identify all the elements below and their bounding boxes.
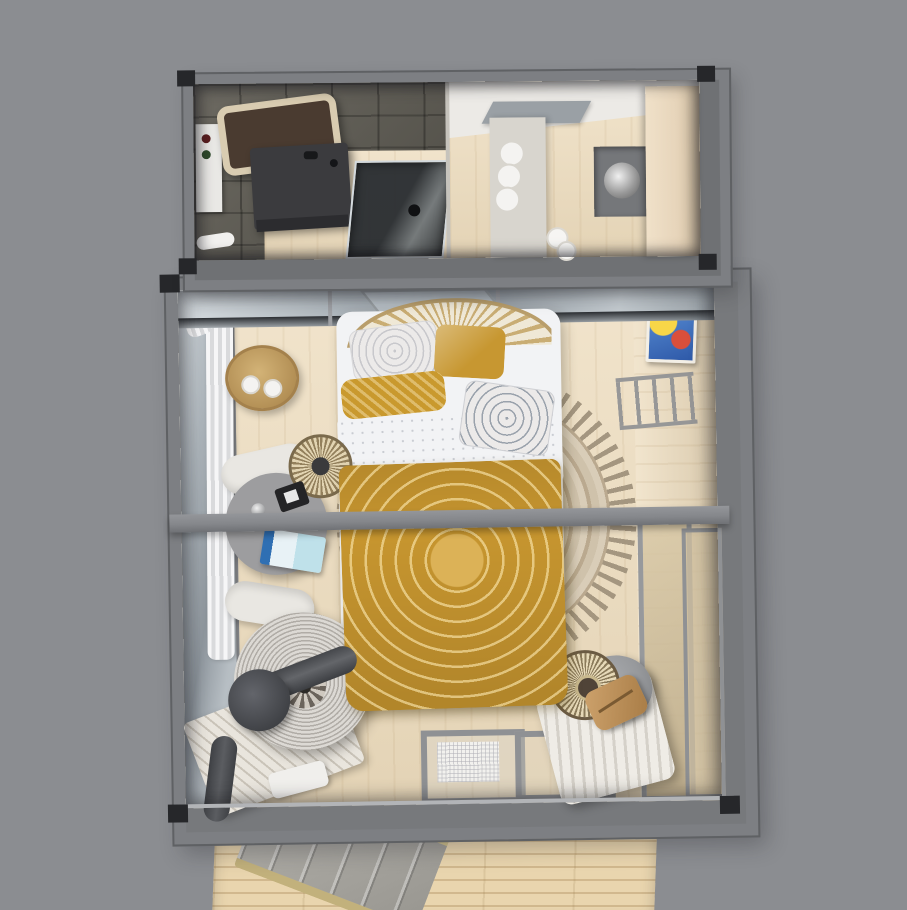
wall-light-center bbox=[311, 457, 329, 475]
duvet-mandala bbox=[338, 459, 568, 712]
washer-drum bbox=[604, 162, 640, 198]
doormat bbox=[437, 741, 500, 782]
faucet bbox=[304, 151, 318, 159]
lower-module bbox=[166, 269, 759, 844]
right-window-b bbox=[682, 528, 726, 799]
bottle-green bbox=[202, 150, 211, 159]
corner-casting bbox=[160, 274, 180, 292]
scene-canvas bbox=[0, 0, 907, 910]
bottle-red bbox=[202, 134, 211, 143]
rolled-towel-1 bbox=[499, 140, 525, 166]
shower-head bbox=[408, 204, 420, 216]
shower bbox=[346, 160, 453, 259]
rolled-towel-3 bbox=[494, 186, 520, 212]
cup-small-2 bbox=[557, 241, 577, 261]
corner-casting bbox=[699, 254, 717, 270]
drain bbox=[330, 159, 338, 167]
corner-casting bbox=[720, 796, 740, 814]
utility-counter bbox=[489, 117, 546, 257]
clock-face bbox=[283, 489, 299, 504]
upper-module bbox=[183, 70, 731, 291]
tall-cabinet bbox=[645, 86, 700, 256]
corner-casting bbox=[168, 804, 188, 822]
corner-casting bbox=[179, 258, 197, 274]
ladder-rack bbox=[615, 372, 697, 430]
pillow-mandala bbox=[458, 379, 556, 457]
top-frame-divider bbox=[328, 288, 333, 326]
corner-casting bbox=[177, 70, 195, 86]
bag-strap bbox=[598, 689, 633, 713]
pillow-mustard bbox=[433, 324, 506, 380]
corner-casting bbox=[697, 66, 715, 82]
